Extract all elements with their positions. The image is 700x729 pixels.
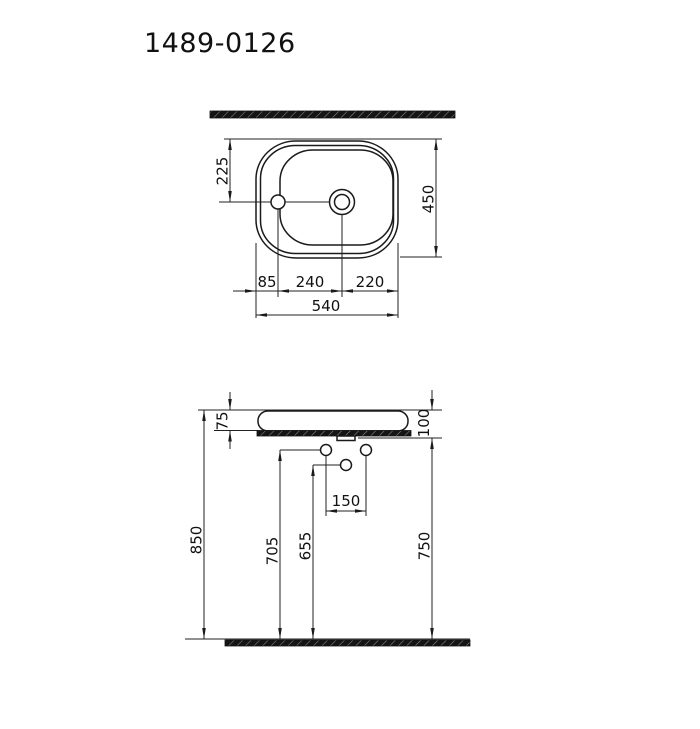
technical-drawing: 225 450 85 240 220 540	[0, 0, 700, 729]
drain-fitting-notch	[337, 436, 355, 441]
drawing-sheet: 1489-0126	[0, 0, 700, 729]
drain-hole	[341, 460, 352, 471]
faucet-hole	[271, 195, 285, 209]
dim-label-drain-to-edge: 220	[356, 273, 385, 291]
dim-label-rim-to-counter: 100	[415, 409, 433, 438]
dim-label-width: 540	[312, 297, 341, 315]
dim-label-edge-to-faucet: 85	[257, 273, 276, 291]
countertop-hatch-bar	[257, 431, 411, 437]
bowl-profile	[258, 411, 408, 431]
floor-hatch-bar	[225, 640, 470, 646]
dim-label-supply-height: 705	[264, 537, 282, 566]
dim-label-faucet-to-drain: 240	[296, 273, 325, 291]
dim-label-depth: 450	[420, 185, 438, 214]
supply-hole-right	[361, 445, 372, 456]
top-view: 225 450 85 240 220 540	[210, 111, 455, 318]
drain-outer-circle	[330, 190, 355, 215]
dim-label-total-height: 850	[188, 526, 206, 555]
dim-label-basin-height: 75	[214, 411, 232, 430]
dim-label-drain-height: 655	[297, 532, 315, 561]
dim-label-faucet-offset: 225	[214, 157, 232, 186]
side-view: 75 100 850 705 655 750 150	[185, 390, 470, 646]
dim-label-hole-spacing: 150	[332, 492, 361, 510]
supply-hole-left	[321, 445, 332, 456]
wall-hatch-bar	[210, 111, 455, 118]
dim-label-counter-height: 750	[416, 532, 434, 561]
